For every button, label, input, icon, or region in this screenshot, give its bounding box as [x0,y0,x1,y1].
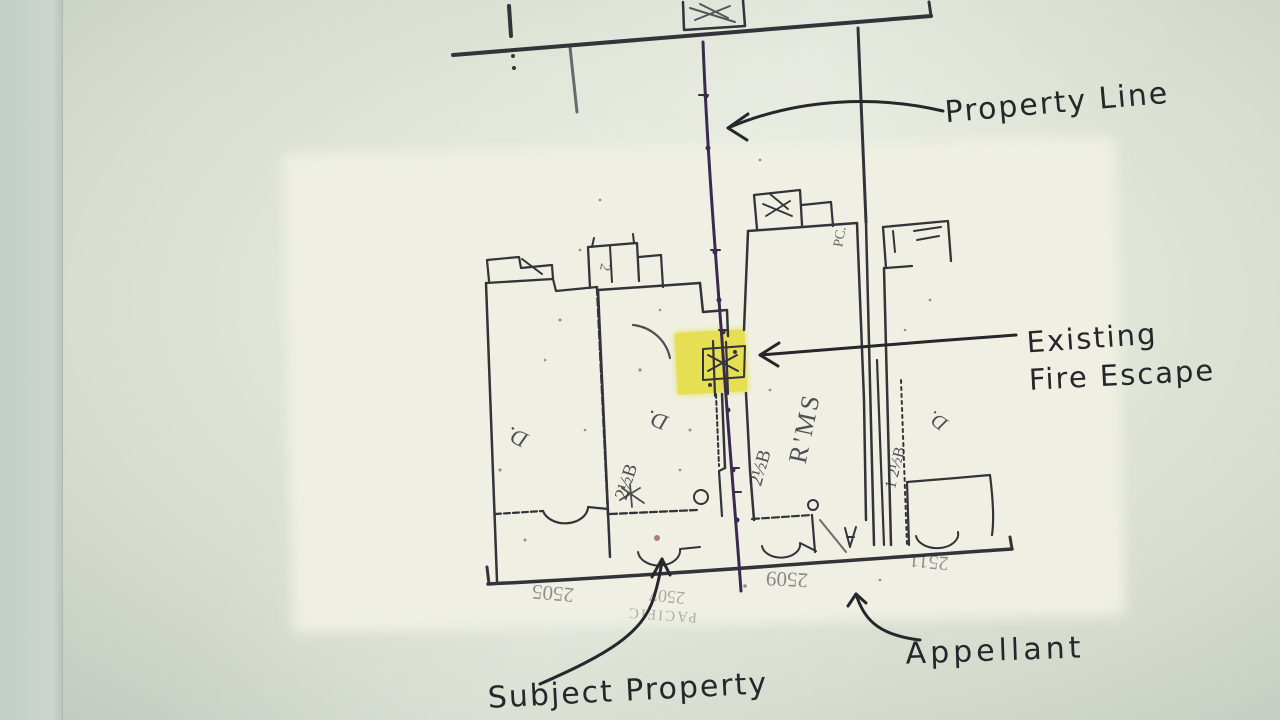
photographed-plat-document: D. 2 D. 2½B R'MS 2½B PC. 1 2½B D. 2505 2… [0,0,1280,720]
leader-arrow-property-line [728,102,943,140]
building-2505-outline [486,257,608,581]
address-2511: 2511 [908,548,949,574]
lot-line-right [858,28,884,545]
building-2511-outline [883,221,993,548]
leader-arrow-fire-escape [760,335,1016,366]
address-2509: 2509 [765,565,808,592]
leader-arrow-appellant [848,594,920,640]
address-2505: 2505 [531,579,575,608]
building-2507-outline [588,234,728,566]
annotation-appellant: Appellant [905,630,1085,671]
